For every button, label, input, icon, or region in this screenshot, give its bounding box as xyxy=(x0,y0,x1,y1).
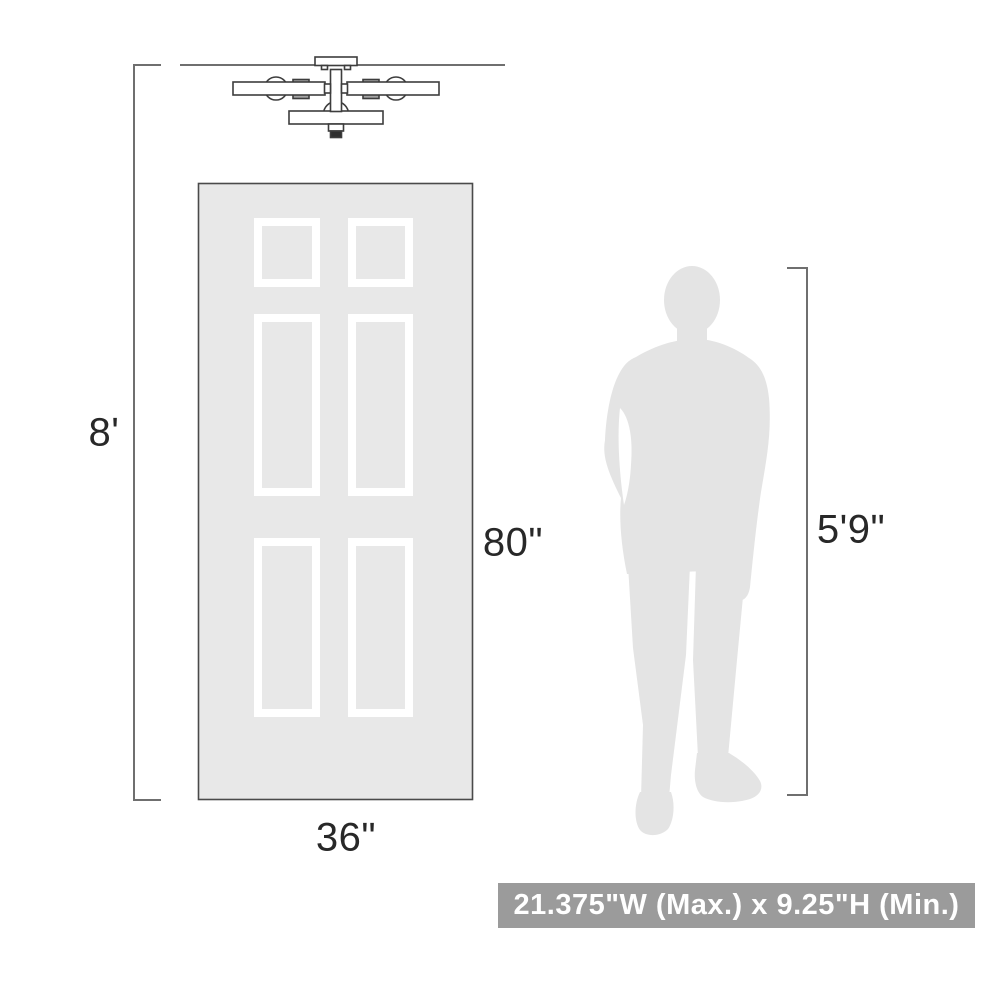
fixture-right-shade xyxy=(347,82,439,95)
door-slab xyxy=(199,184,473,800)
fixture-lower-shade xyxy=(289,111,383,124)
person-height-dimension-line xyxy=(787,268,807,795)
ceiling-height-label: 8' xyxy=(89,411,120,456)
silhouette-left-shoe xyxy=(636,792,674,835)
door-width-label: 36" xyxy=(316,816,376,861)
six-panel-door xyxy=(199,184,473,800)
fixture-stem xyxy=(331,70,342,112)
fixture-right-arm-joint xyxy=(342,84,348,93)
silhouette-right-shoe xyxy=(695,753,762,802)
fixture-finial-base xyxy=(329,124,344,131)
fixture-finial-knob xyxy=(331,131,342,138)
fixture-left-arm-joint xyxy=(325,84,331,93)
diagram-canvas xyxy=(0,0,1000,1000)
fixture-canopy-screw-left xyxy=(322,66,328,70)
fixture-canopy xyxy=(315,57,357,66)
person-height-label: 5'9" xyxy=(817,508,885,553)
ceiling-light-fixture-icon xyxy=(233,57,439,138)
silhouette-right-leg xyxy=(693,565,746,757)
product-scale-diagram: 8' 80" 36" 5'9" 21.375"W (Max.) x 9.25"H… xyxy=(0,0,1000,1000)
fixture-left-shade xyxy=(233,82,325,95)
fixture-canopy-screw-right xyxy=(345,66,351,70)
man-silhouette xyxy=(604,266,770,835)
ceiling-height-dimension-line xyxy=(134,65,161,800)
door-height-label: 80" xyxy=(483,521,543,566)
fixture-size-banner: 21.375"W (Max.) x 9.25"H (Min.) xyxy=(498,883,975,928)
silhouette-left-leg xyxy=(628,565,690,798)
